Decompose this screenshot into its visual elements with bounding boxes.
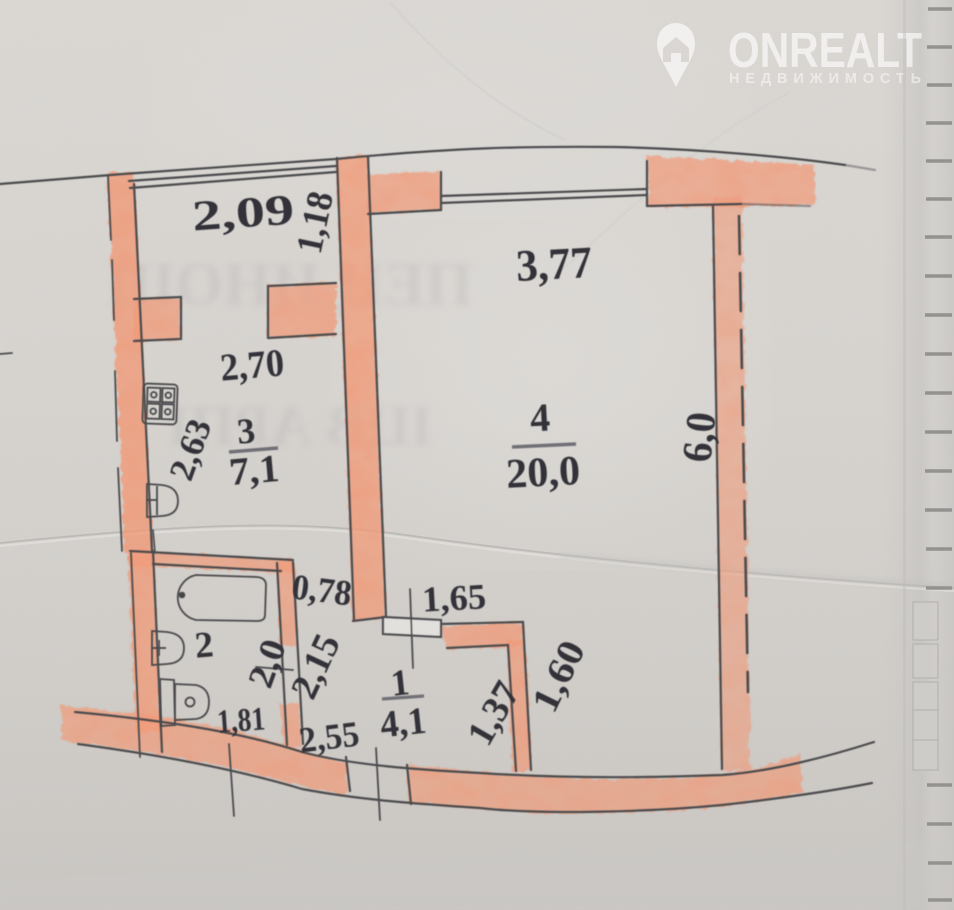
svg-text:7,1: 7,1 (227, 447, 281, 494)
svg-text:3,77: 3,77 (515, 237, 594, 291)
svg-text:1,65: 1,65 (421, 576, 487, 619)
svg-text:4: 4 (529, 395, 551, 441)
svg-text:2,70: 2,70 (218, 341, 286, 389)
svg-text:6,0: 6,0 (675, 410, 726, 465)
svg-text:3: 3 (235, 410, 256, 451)
svg-text:1,81: 1,81 (216, 701, 266, 740)
svg-text:ONREALT: ONREALT (728, 24, 922, 78)
svg-text:2,55: 2,55 (297, 713, 361, 760)
svg-text:2,09: 2,09 (191, 186, 296, 240)
svg-text:20,0: 20,0 (505, 448, 581, 498)
svg-text:0,78: 0,78 (290, 566, 354, 613)
svg-text:4,1: 4,1 (378, 700, 428, 747)
svg-text:2: 2 (193, 624, 215, 666)
